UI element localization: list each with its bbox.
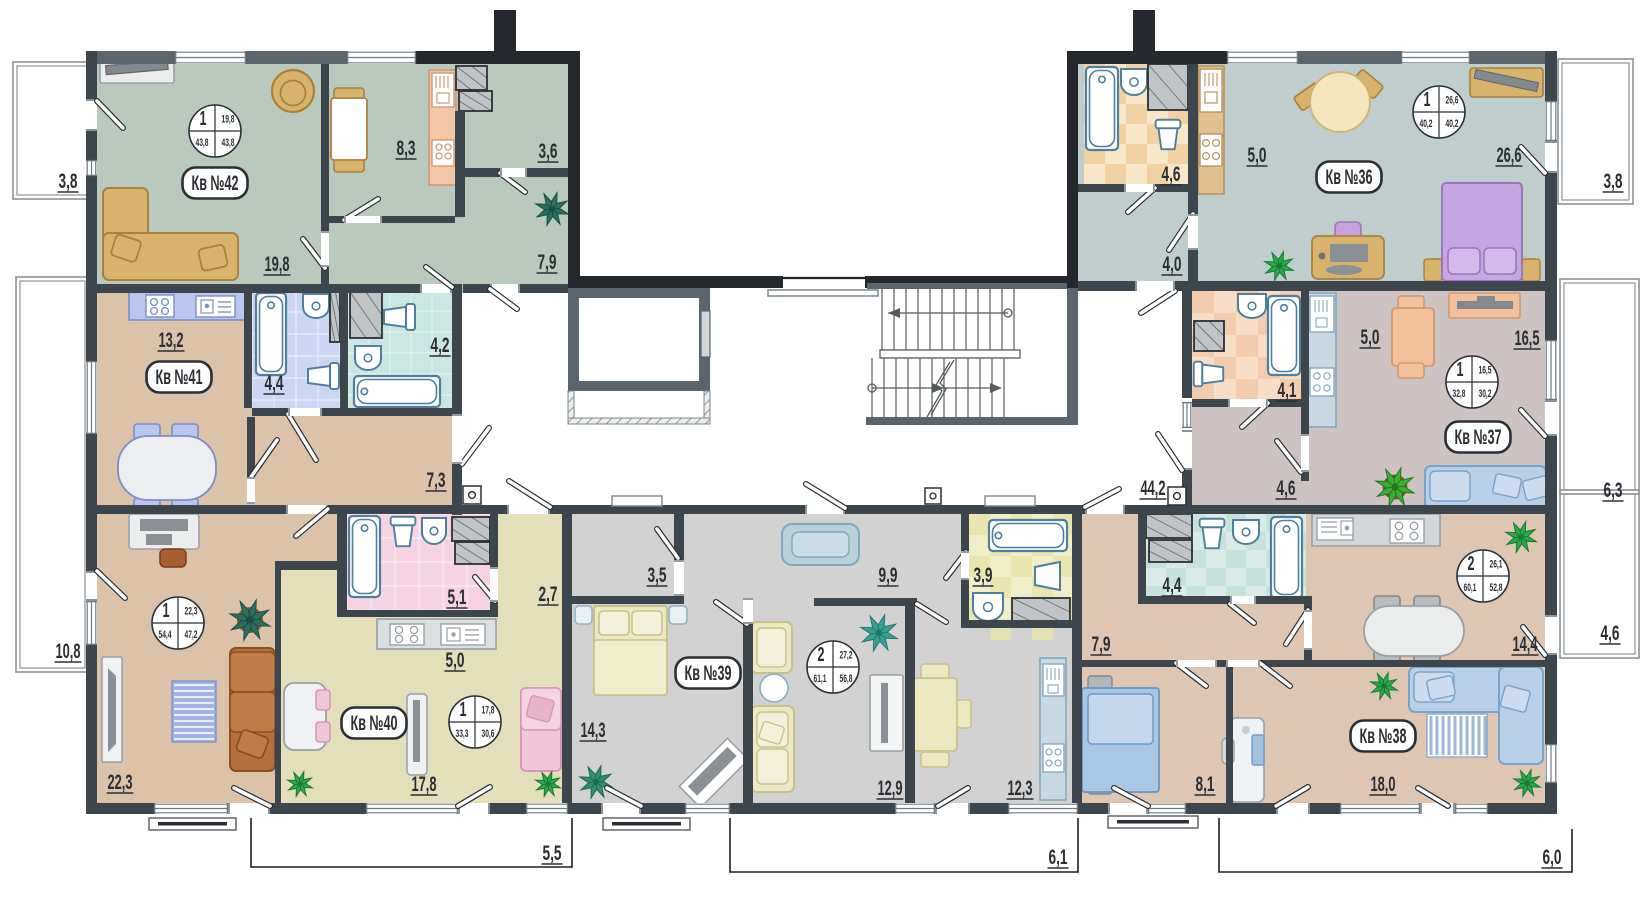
- svg-text:32,8: 32,8: [1453, 388, 1466, 400]
- svg-text:3,9: 3,9: [974, 564, 993, 587]
- svg-text:Кв №38: Кв №38: [1360, 725, 1407, 748]
- svg-text:18,0: 18,0: [1371, 773, 1396, 796]
- svg-text:Кв №40: Кв №40: [351, 712, 398, 735]
- svg-text:26,1: 26,1: [1490, 559, 1503, 571]
- svg-text:10,8: 10,8: [56, 640, 81, 663]
- svg-text:17,8: 17,8: [482, 705, 495, 717]
- svg-text:26,6: 26,6: [1497, 144, 1522, 167]
- svg-text:30,6: 30,6: [482, 728, 495, 740]
- svg-text:Кв №36: Кв №36: [1326, 166, 1373, 189]
- svg-text:26,6: 26,6: [1446, 95, 1459, 107]
- svg-text:Кв №39: Кв №39: [685, 662, 732, 685]
- svg-text:6,3: 6,3: [1604, 479, 1623, 502]
- svg-text:2: 2: [818, 644, 825, 666]
- svg-text:19,8: 19,8: [265, 253, 290, 276]
- svg-text:4,1: 4,1: [1278, 379, 1297, 402]
- svg-text:54,4: 54,4: [159, 629, 173, 641]
- svg-text:Кв №37: Кв №37: [1455, 426, 1502, 449]
- svg-text:12,9: 12,9: [878, 777, 903, 800]
- svg-text:43,8: 43,8: [196, 137, 209, 149]
- svg-text:9,9: 9,9: [879, 564, 898, 587]
- svg-text:5,0: 5,0: [1248, 144, 1267, 167]
- svg-text:22,3: 22,3: [108, 771, 133, 794]
- svg-text:1: 1: [460, 699, 467, 721]
- svg-text:1: 1: [1457, 359, 1464, 381]
- svg-text:61,1: 61,1: [814, 673, 827, 685]
- svg-text:5,5: 5,5: [543, 842, 562, 865]
- svg-text:7,3: 7,3: [427, 469, 446, 492]
- svg-text:14,3: 14,3: [581, 719, 606, 742]
- svg-text:33,3: 33,3: [456, 728, 469, 740]
- svg-text:22,3: 22,3: [185, 606, 198, 618]
- svg-text:Кв №41: Кв №41: [156, 366, 203, 389]
- svg-text:4,4: 4,4: [265, 372, 284, 395]
- svg-text:3,6: 3,6: [539, 140, 558, 163]
- svg-text:19,8: 19,8: [222, 114, 235, 126]
- svg-text:56,8: 56,8: [840, 673, 853, 685]
- svg-text:14,4: 14,4: [1513, 633, 1538, 656]
- svg-text:60,1: 60,1: [1464, 582, 1477, 594]
- svg-text:3,8: 3,8: [59, 170, 78, 193]
- svg-text:30,2: 30,2: [1479, 388, 1492, 400]
- svg-text:13,2: 13,2: [159, 329, 184, 352]
- svg-text:16,5: 16,5: [1515, 327, 1540, 350]
- svg-text:40,2: 40,2: [1446, 118, 1459, 130]
- svg-text:4,4: 4,4: [1163, 574, 1182, 597]
- svg-text:4,6: 4,6: [1162, 163, 1181, 186]
- svg-text:8,1: 8,1: [1196, 773, 1215, 796]
- svg-text:7,9: 7,9: [1092, 633, 1111, 656]
- svg-text:1: 1: [1424, 89, 1431, 111]
- svg-text:1: 1: [163, 600, 170, 622]
- svg-text:4,2: 4,2: [431, 334, 450, 357]
- svg-text:47,2: 47,2: [185, 629, 198, 641]
- svg-text:6,1: 6,1: [1049, 846, 1068, 869]
- svg-text:5,1: 5,1: [448, 586, 467, 609]
- svg-text:12,3: 12,3: [1008, 777, 1033, 800]
- svg-text:27,2: 27,2: [840, 650, 853, 662]
- svg-text:52,8: 52,8: [1490, 582, 1503, 594]
- svg-text:5,0: 5,0: [1361, 326, 1380, 349]
- svg-text:43,8: 43,8: [222, 137, 235, 149]
- svg-text:3,5: 3,5: [648, 564, 667, 587]
- svg-text:4,0: 4,0: [1163, 253, 1182, 276]
- svg-text:7,9: 7,9: [538, 251, 557, 274]
- svg-text:4,6: 4,6: [1277, 477, 1296, 500]
- svg-text:17,8: 17,8: [412, 773, 437, 796]
- svg-text:2,7: 2,7: [539, 583, 558, 606]
- svg-text:4,6: 4,6: [1601, 622, 1620, 645]
- svg-text:Кв №42: Кв №42: [192, 172, 239, 195]
- svg-text:16,5: 16,5: [1479, 365, 1492, 377]
- svg-text:44,2: 44,2: [1141, 477, 1166, 500]
- svg-text:2: 2: [1468, 553, 1475, 575]
- svg-text:6,0: 6,0: [1543, 846, 1562, 869]
- svg-text:8,3: 8,3: [397, 137, 416, 160]
- svg-text:1: 1: [200, 108, 207, 130]
- svg-text:40,2: 40,2: [1420, 118, 1433, 130]
- svg-text:3,8: 3,8: [1604, 170, 1623, 193]
- svg-text:5,0: 5,0: [446, 649, 465, 672]
